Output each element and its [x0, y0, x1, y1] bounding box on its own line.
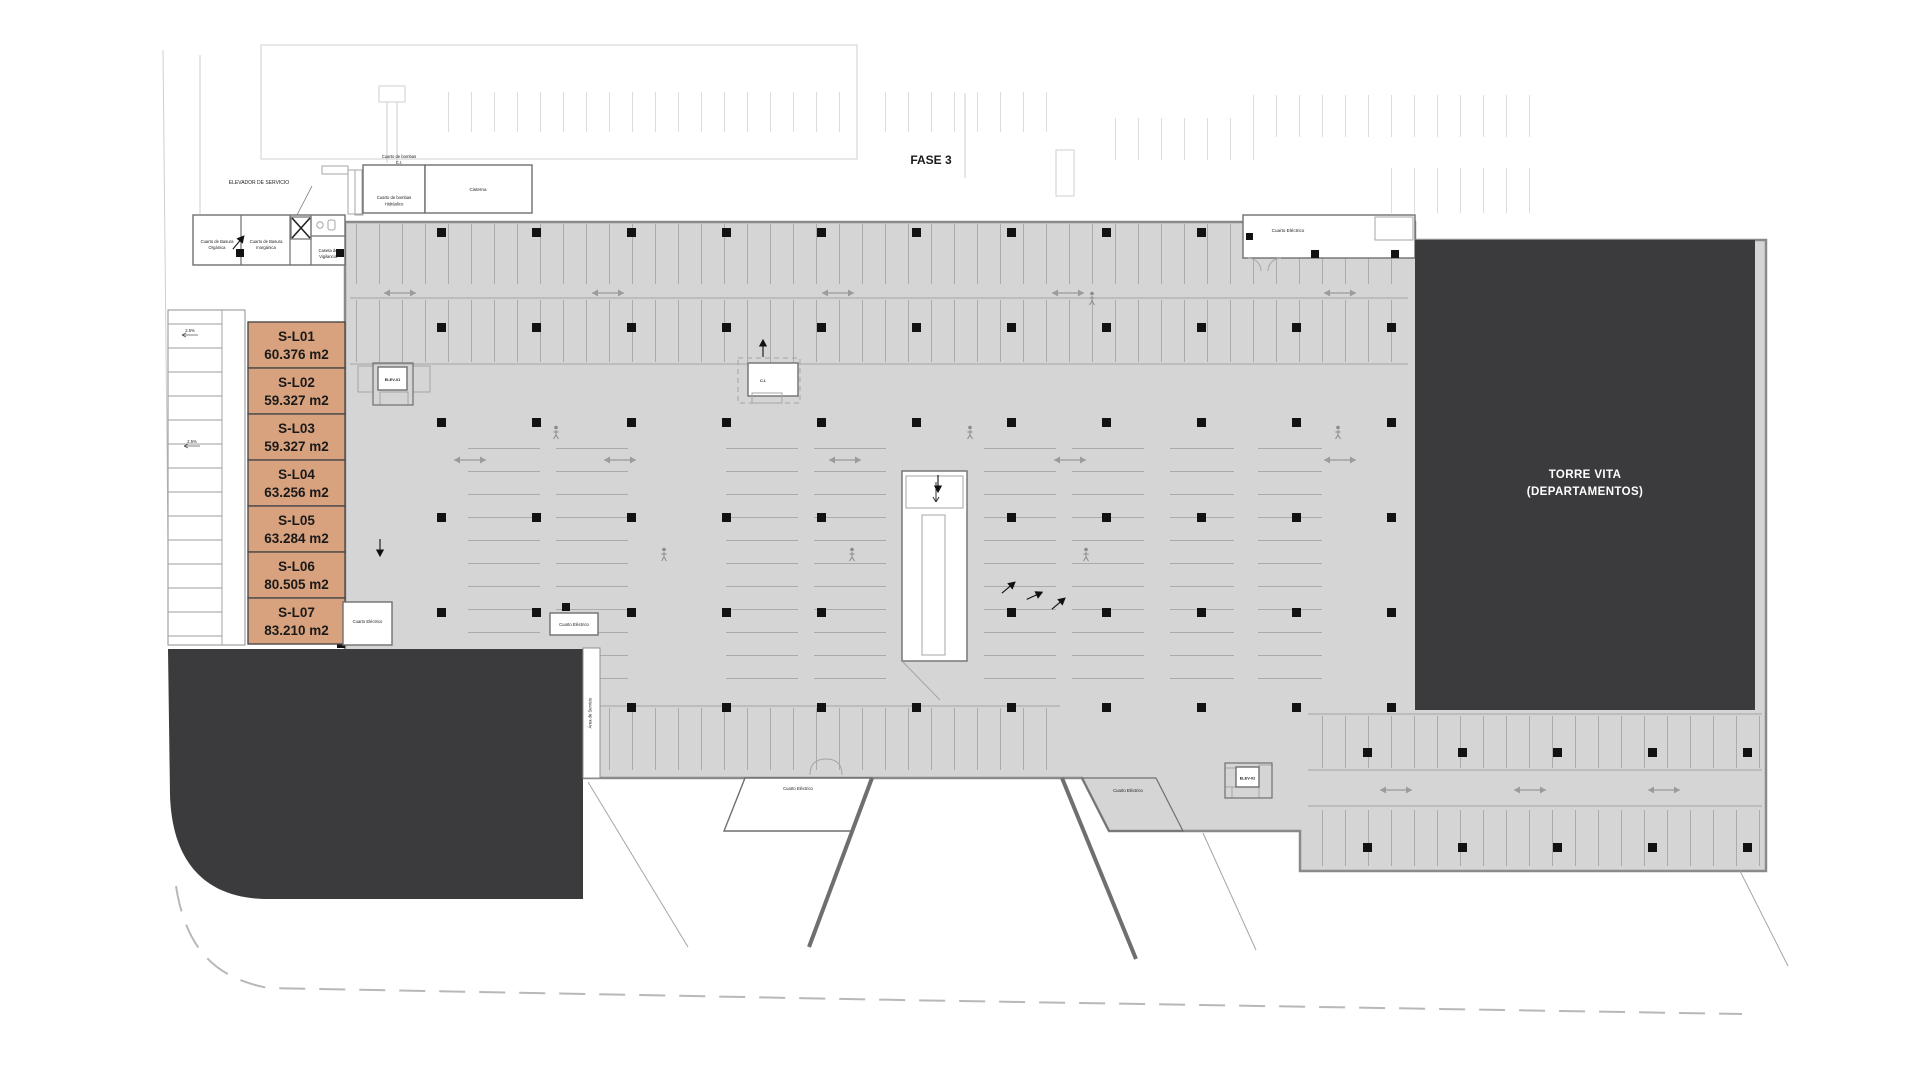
service-rooms-cluster: Cuarto de Basura Orgánica Cuarto de Basu…	[193, 180, 345, 265]
central-core-label: C.I.	[760, 378, 766, 383]
pump-rooms: Cuarto de bombas C.I. Cuarto de bombas H…	[322, 154, 532, 215]
lower-left-building-block: Área de Servicio	[168, 648, 600, 899]
trash-organic-label: Cuarto de Basura	[201, 239, 234, 244]
pump-room-fire-label: Cuarto de bombas	[382, 154, 416, 159]
guard-booth-label: Caseta de	[318, 248, 338, 253]
floor-plan-canvas: Cuarto Eléctrico Cuarto Eléctrico Cuarto…	[0, 0, 1920, 1080]
phase-label: FASE 3	[910, 153, 952, 167]
electrical-room-label: Cuarto Eléctrico	[1113, 788, 1143, 793]
storage-unit-area: 60.376 m2	[264, 347, 329, 362]
pump-room-hydraulic-label: Hidráulico	[385, 202, 404, 207]
service-area-label: Área de Servicio	[588, 697, 593, 728]
left-parking-strip: 2.5% 2.5%	[168, 310, 245, 645]
service-elevator-label: ELEVADOR DE SERVICIO	[229, 180, 289, 186]
trash-inorganic-label: Cuarto de Basura	[250, 239, 283, 244]
storage-unit-area: 59.327 m2	[264, 439, 329, 454]
tower-name: TORRE VITA	[1549, 469, 1622, 481]
elevator-2-label: ELEV-02	[1240, 776, 1256, 781]
storage-unit-id: S-L05	[278, 513, 315, 528]
storage-unit-SL03[interactable]: S-L03 59.327 m2	[248, 414, 345, 460]
cistern-label: Cisterna	[469, 187, 487, 192]
storage-unit-area: 59.327 m2	[264, 393, 329, 408]
storage-units: S-L01 60.376 m2 S-L02 59.327 m2 S-L03 59…	[248, 322, 345, 644]
slope-annotation: 2.5%	[187, 439, 197, 444]
storage-unit-id: S-L01	[278, 329, 315, 344]
storage-unit-id: S-L06	[278, 559, 315, 574]
storage-unit-SL01[interactable]: S-L01 60.376 m2	[248, 322, 345, 368]
trash-organic-label: Orgánica	[209, 245, 227, 250]
storage-unit-SL02[interactable]: S-L02 59.327 m2	[248, 368, 345, 414]
storage-unit-id: S-L03	[278, 421, 315, 436]
guard-booth-label: Vigilancia	[319, 254, 338, 259]
storage-unit-SL06[interactable]: S-L06 80.505 m2	[248, 552, 345, 598]
storage-unit-id: S-L02	[278, 375, 315, 390]
trash-inorganic-label: Inorgánica	[256, 245, 276, 250]
electrical-room-label: Cuarto Eléctrico	[783, 786, 813, 791]
storage-unit-area: 63.284 m2	[264, 531, 329, 546]
elevator-1-label: ELEV-01	[385, 377, 401, 382]
storage-unit-SL05[interactable]: S-L05 63.284 m2	[248, 506, 345, 552]
electrical-room-label: Cuarto Eléctrico	[559, 622, 589, 627]
storage-unit-SL04[interactable]: S-L04 63.256 m2	[248, 460, 345, 506]
storage-unit-id: S-L04	[278, 467, 315, 482]
storage-unit-area: 80.505 m2	[264, 577, 329, 592]
electrical-room-label: Cuarto Eléctrico	[353, 619, 383, 624]
storage-unit-id: S-L07	[278, 605, 315, 620]
storage-unit-SL07[interactable]: S-L07 83.210 m2	[248, 598, 345, 644]
pump-room-fire-label: C.I.	[396, 160, 403, 165]
slope-annotation: 2.5%	[185, 328, 195, 333]
tower-block: TORRE VITA (DEPARTAMENTOS)	[1415, 240, 1755, 710]
electrical-room-label: Cuarto Eléctrico	[1272, 228, 1305, 233]
tower-name: (DEPARTAMENTOS)	[1527, 486, 1644, 498]
pump-room-hydraulic-label: Cuarto de bombas	[377, 195, 411, 200]
storage-unit-area: 83.210 m2	[264, 623, 329, 638]
storage-unit-area: 63.256 m2	[264, 485, 329, 500]
site-boundary	[176, 886, 1742, 1014]
